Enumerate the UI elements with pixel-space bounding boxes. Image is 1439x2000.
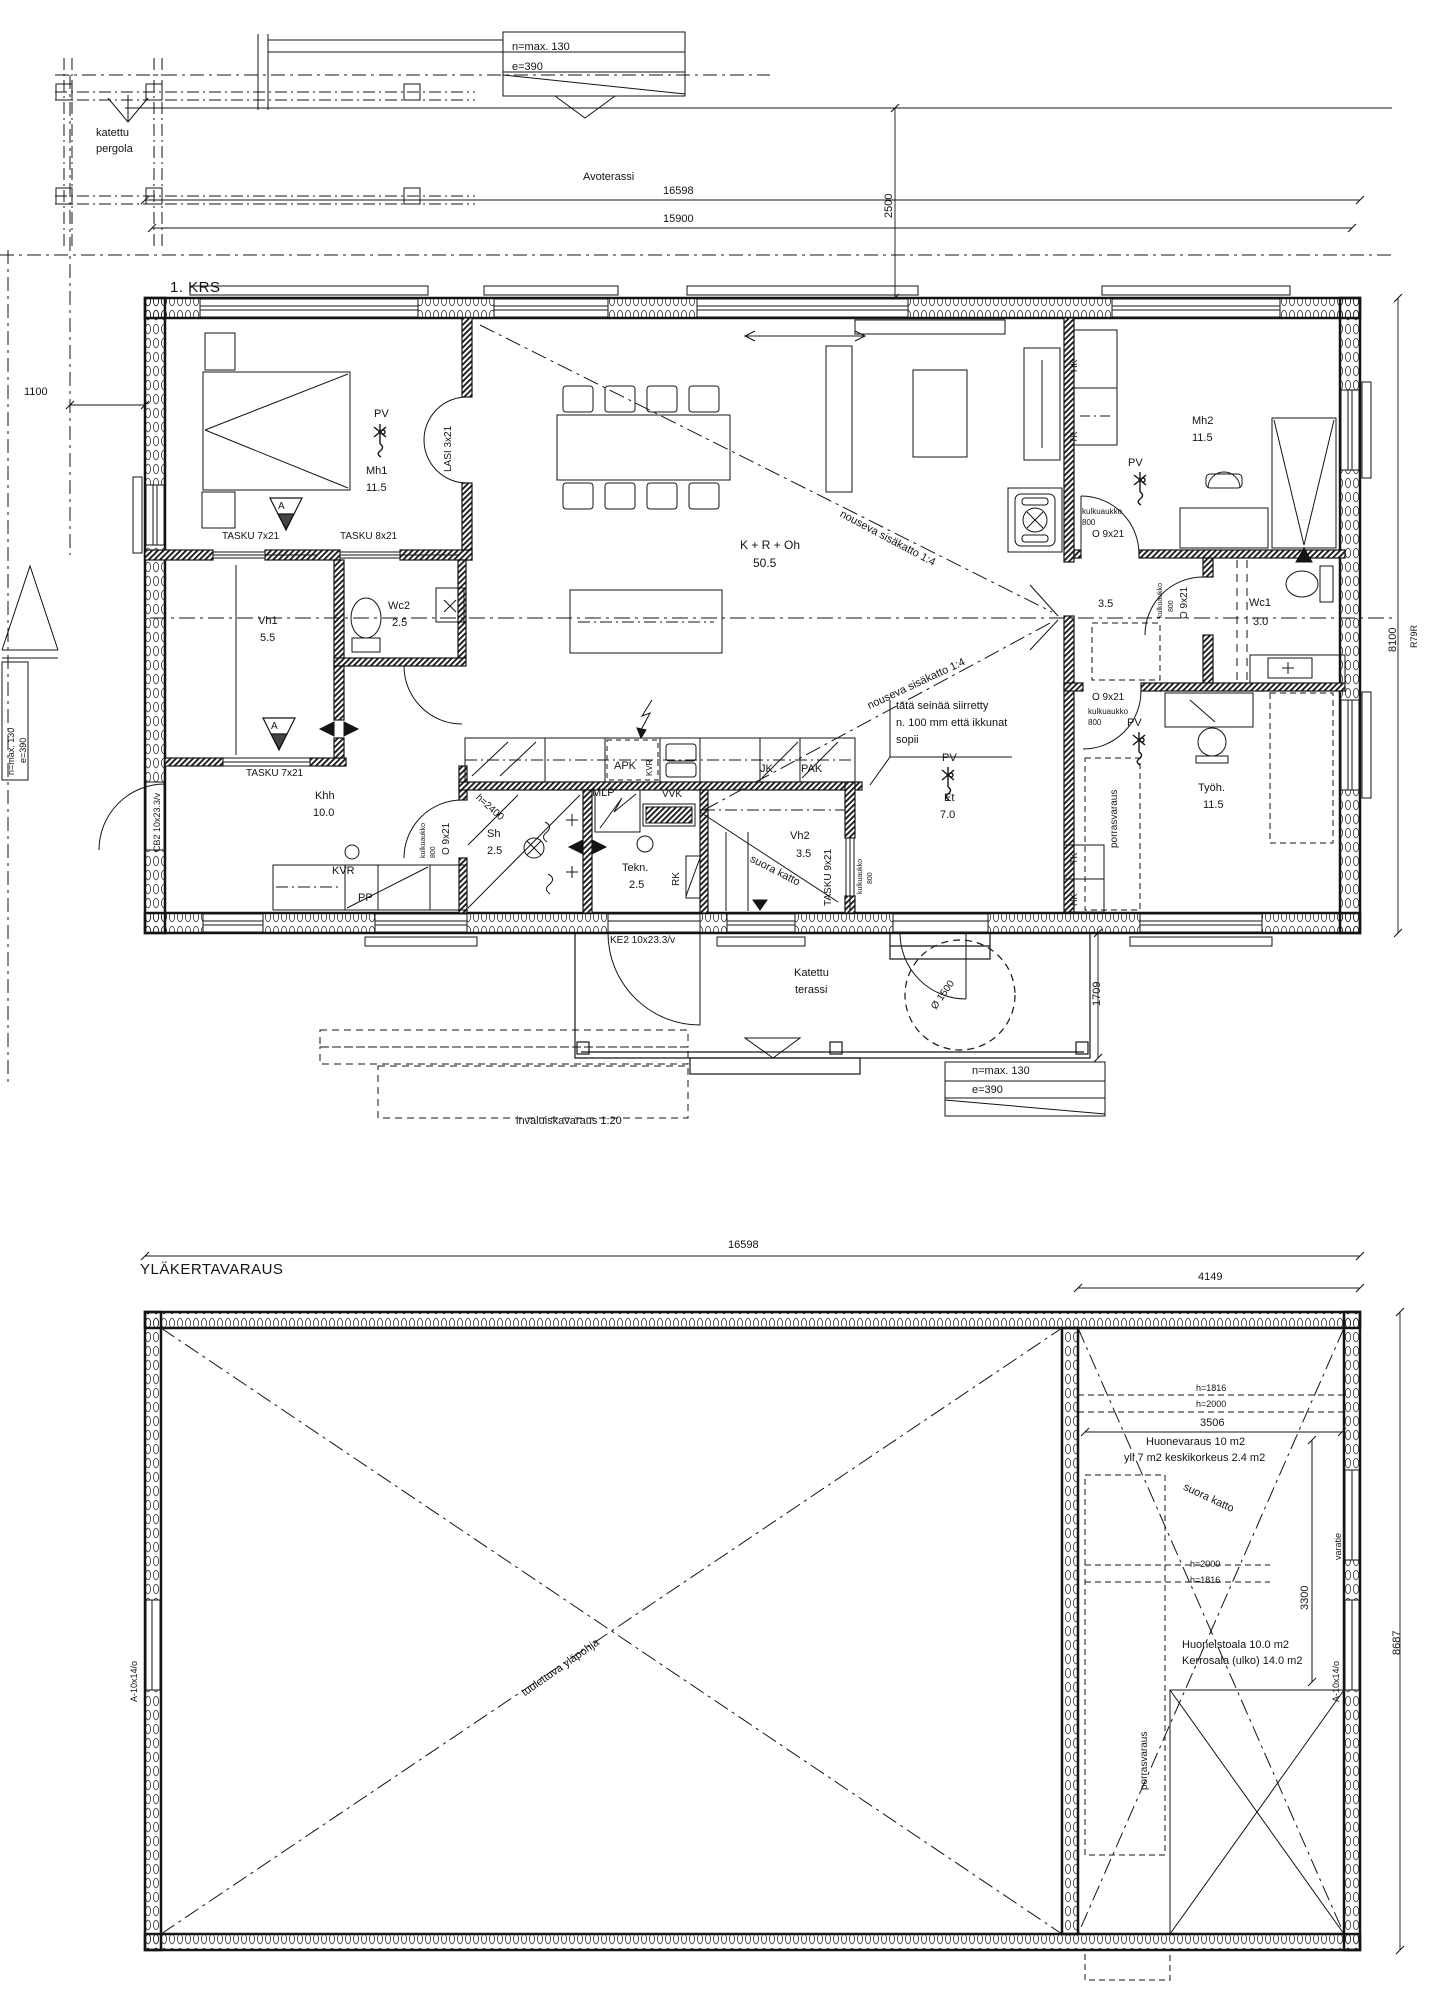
label-dim-16598-1: 16598 bbox=[663, 186, 694, 197]
label-dim-4149: 4149 bbox=[1198, 1272, 1222, 1283]
label-jk: JK bbox=[760, 764, 773, 775]
floor1-title: 1. KRS bbox=[170, 280, 221, 295]
label-katettu: katettu bbox=[96, 128, 129, 139]
label-porras2: porrasvaraus bbox=[1140, 1732, 1150, 1790]
label-tasku8: TASKU 8x21 bbox=[340, 532, 397, 542]
label-kulk4: kulkuaukko bbox=[1157, 583, 1164, 618]
label-kulk3: kulkuaukko bbox=[1082, 508, 1122, 516]
label-o9-2: O 9x21 bbox=[1092, 530, 1124, 540]
label-dim-8687: 8687 bbox=[1392, 1631, 1403, 1655]
label-h1816-a: h=1816 bbox=[1196, 1384, 1226, 1393]
terrace bbox=[575, 933, 1090, 1074]
label-kerrosala: Kerrosala (ulko) 14.0 m2 bbox=[1182, 1656, 1302, 1667]
label-kulk1b: 800 bbox=[430, 846, 437, 858]
label-nmax-top: n=max. 130 bbox=[512, 42, 570, 53]
floor1-interior-walls bbox=[145, 318, 1345, 913]
label-terassi: terassi bbox=[795, 985, 827, 996]
label-dim-1100: 1100 bbox=[24, 387, 48, 398]
label-dim-2500: 2500 bbox=[884, 194, 895, 218]
label-apk: APK bbox=[614, 761, 636, 772]
label-sec-a1: A bbox=[278, 502, 285, 512]
label-note2: n. 100 mm että ikkunat bbox=[896, 718, 1007, 729]
label-r79r: R79R bbox=[1410, 625, 1419, 648]
label-pv-et: PV bbox=[942, 753, 957, 764]
label-a10-right: A-10x14/o bbox=[1332, 1661, 1341, 1702]
label-rk: RK bbox=[672, 872, 682, 886]
label-et: Et bbox=[944, 793, 954, 804]
label-mh2-a: 11.5 bbox=[1192, 433, 1213, 444]
label-h2000-a: h=2000 bbox=[1196, 1400, 1226, 1409]
label-kulk2b: 800 bbox=[867, 872, 874, 884]
label-wc2-a: 2.5 bbox=[392, 618, 407, 629]
floorplan-page: 1. KRS YLÄKERTAVARAUS n=max. 130e=390kat… bbox=[0, 0, 1439, 2000]
label-h2000-b: h=2000 bbox=[1190, 1560, 1220, 1569]
label-tk2: TK bbox=[1070, 852, 1079, 864]
label-tyoh-a: 11.5 bbox=[1203, 800, 1224, 811]
label-tasku7b: TASKU 7x21 bbox=[246, 769, 303, 779]
label-huonevaraus: Huonevaraus 10 m2 bbox=[1146, 1437, 1245, 1448]
label-porras1: porrasvaraus bbox=[1110, 790, 1120, 848]
label-tekn-a: 2.5 bbox=[629, 880, 644, 891]
label-dim-8100: 8100 bbox=[1388, 628, 1399, 652]
label-mh2: Mh2 bbox=[1192, 416, 1213, 427]
label-dim-3506: 3506 bbox=[1200, 1418, 1224, 1429]
label-tyoh: Työh. bbox=[1198, 783, 1225, 794]
label-vh2: Vh2 bbox=[790, 831, 810, 842]
label-vvk: VVK bbox=[662, 790, 682, 800]
label-huoneistoala: Huoneistoala 10.0 m2 bbox=[1182, 1640, 1289, 1651]
label-mlp: MLP bbox=[592, 788, 615, 799]
label-tk1: TK bbox=[1070, 431, 1079, 443]
label-lasi: LASI 3x21 bbox=[444, 426, 454, 472]
label-invaluiska: invaluiskavaraus 1:20 bbox=[516, 1116, 622, 1127]
label-tekn: Tekn. bbox=[622, 863, 648, 874]
label-kulk3b: 800 bbox=[1082, 519, 1095, 527]
label-kulk2: kulkuaukko bbox=[857, 859, 864, 894]
floor2-openings bbox=[146, 1470, 1359, 1690]
label-vh1-a: 5.5 bbox=[260, 633, 275, 644]
label-nmax-bot: n=max. 130 bbox=[972, 1066, 1030, 1077]
label-o9-3: O 9x21 bbox=[1180, 587, 1190, 619]
label-tasku7a: TASKU 7x21 bbox=[222, 532, 279, 542]
label-sh: Sh bbox=[487, 829, 500, 840]
label-wc2: Wc2 bbox=[388, 601, 410, 612]
label-a10-left: A-10x14/o bbox=[130, 1661, 139, 1702]
ramp-reservation bbox=[320, 1030, 688, 1118]
label-dim-16598-2: 16598 bbox=[728, 1240, 759, 1251]
label-kroh-a: 50.5 bbox=[753, 557, 776, 569]
label-pv-tyo: PV bbox=[1127, 718, 1142, 729]
label-wc1-a: 3.0 bbox=[1253, 617, 1268, 628]
label-khh: Khh bbox=[315, 791, 335, 802]
floor2-walls bbox=[145, 1312, 1360, 1950]
label-o9-4: O 9x21 bbox=[1092, 693, 1124, 703]
label-kulk1: kulkuaukko bbox=[420, 823, 427, 858]
floor1-outer-walls bbox=[145, 298, 1360, 933]
label-dim-3300: 3300 bbox=[1300, 1586, 1311, 1610]
label-kulk5b: 800 bbox=[1088, 719, 1101, 727]
label-h1816-b: h=1816 bbox=[1190, 1576, 1220, 1585]
label-e390-left: e=390 bbox=[19, 738, 28, 763]
label-pv-mh2: PV bbox=[1128, 458, 1143, 469]
label-hk1: HK bbox=[1070, 359, 1079, 372]
floor2-title: YLÄKERTAVARAUS bbox=[140, 1262, 283, 1277]
label-note1: tätä seinää siirretty bbox=[896, 701, 988, 712]
label-vh2-a: 3.5 bbox=[796, 849, 811, 860]
label-pak: PAK bbox=[801, 764, 822, 775]
label-mh1: Mh1 bbox=[366, 466, 387, 477]
plan-linework bbox=[0, 0, 1439, 2000]
label-kulk4b: 800 bbox=[1168, 600, 1175, 612]
label-dim-1709: 1709 bbox=[1092, 982, 1103, 1006]
label-kulk5: kulkuaukko bbox=[1088, 708, 1128, 716]
label-pergola: pergola bbox=[96, 144, 133, 155]
dimensions-floor2 bbox=[141, 1252, 1404, 1954]
label-tasku9: TASKU 9x21 bbox=[824, 849, 834, 906]
floor2-lines bbox=[161, 1328, 1346, 1980]
label-e390-top: e=390 bbox=[512, 62, 543, 73]
label-varatie: varatie bbox=[1334, 1533, 1343, 1560]
label-kroh: K + R + Oh bbox=[740, 539, 800, 551]
label-hk2: HK bbox=[1070, 893, 1079, 906]
label-mh1-a: 11.5 bbox=[366, 483, 387, 494]
label-pp: PP bbox=[358, 893, 373, 904]
label-et-a: 7.0 bbox=[940, 810, 955, 821]
ramp-spec-box-bottom bbox=[745, 1038, 1105, 1116]
label-wc1: Wc1 bbox=[1249, 598, 1271, 609]
label-sec-a2: A bbox=[271, 722, 278, 732]
label-avoterassi: Avoterassi bbox=[583, 172, 634, 183]
label-kvr: KVR bbox=[332, 866, 355, 877]
label-cb2: CB2 10x23.3/v bbox=[153, 793, 162, 852]
label-kvr2: KVR bbox=[646, 760, 654, 776]
label-yli7: yli 7 m2 keskikorkeus 2.4 m2 bbox=[1124, 1453, 1265, 1464]
label-pv-mh1: PV bbox=[374, 409, 389, 420]
label-note3: sopii bbox=[896, 735, 919, 746]
label-dim-15900: 15900 bbox=[663, 214, 694, 225]
label-vh1: Vh1 bbox=[258, 616, 278, 627]
label-e390-bot: e=390 bbox=[972, 1085, 1003, 1096]
label-o9-1: O 9x21 bbox=[442, 823, 452, 855]
label-nmax-left: n=max. 130 bbox=[7, 728, 16, 775]
label-sh-a: 2.5 bbox=[487, 846, 502, 857]
label-katettu-t: Katettu bbox=[794, 968, 829, 979]
label-khh-a: 10.0 bbox=[313, 808, 334, 819]
label-ke2: KE2 10x23.3/v bbox=[610, 936, 675, 946]
label-hall35: 3.5 bbox=[1098, 599, 1113, 610]
